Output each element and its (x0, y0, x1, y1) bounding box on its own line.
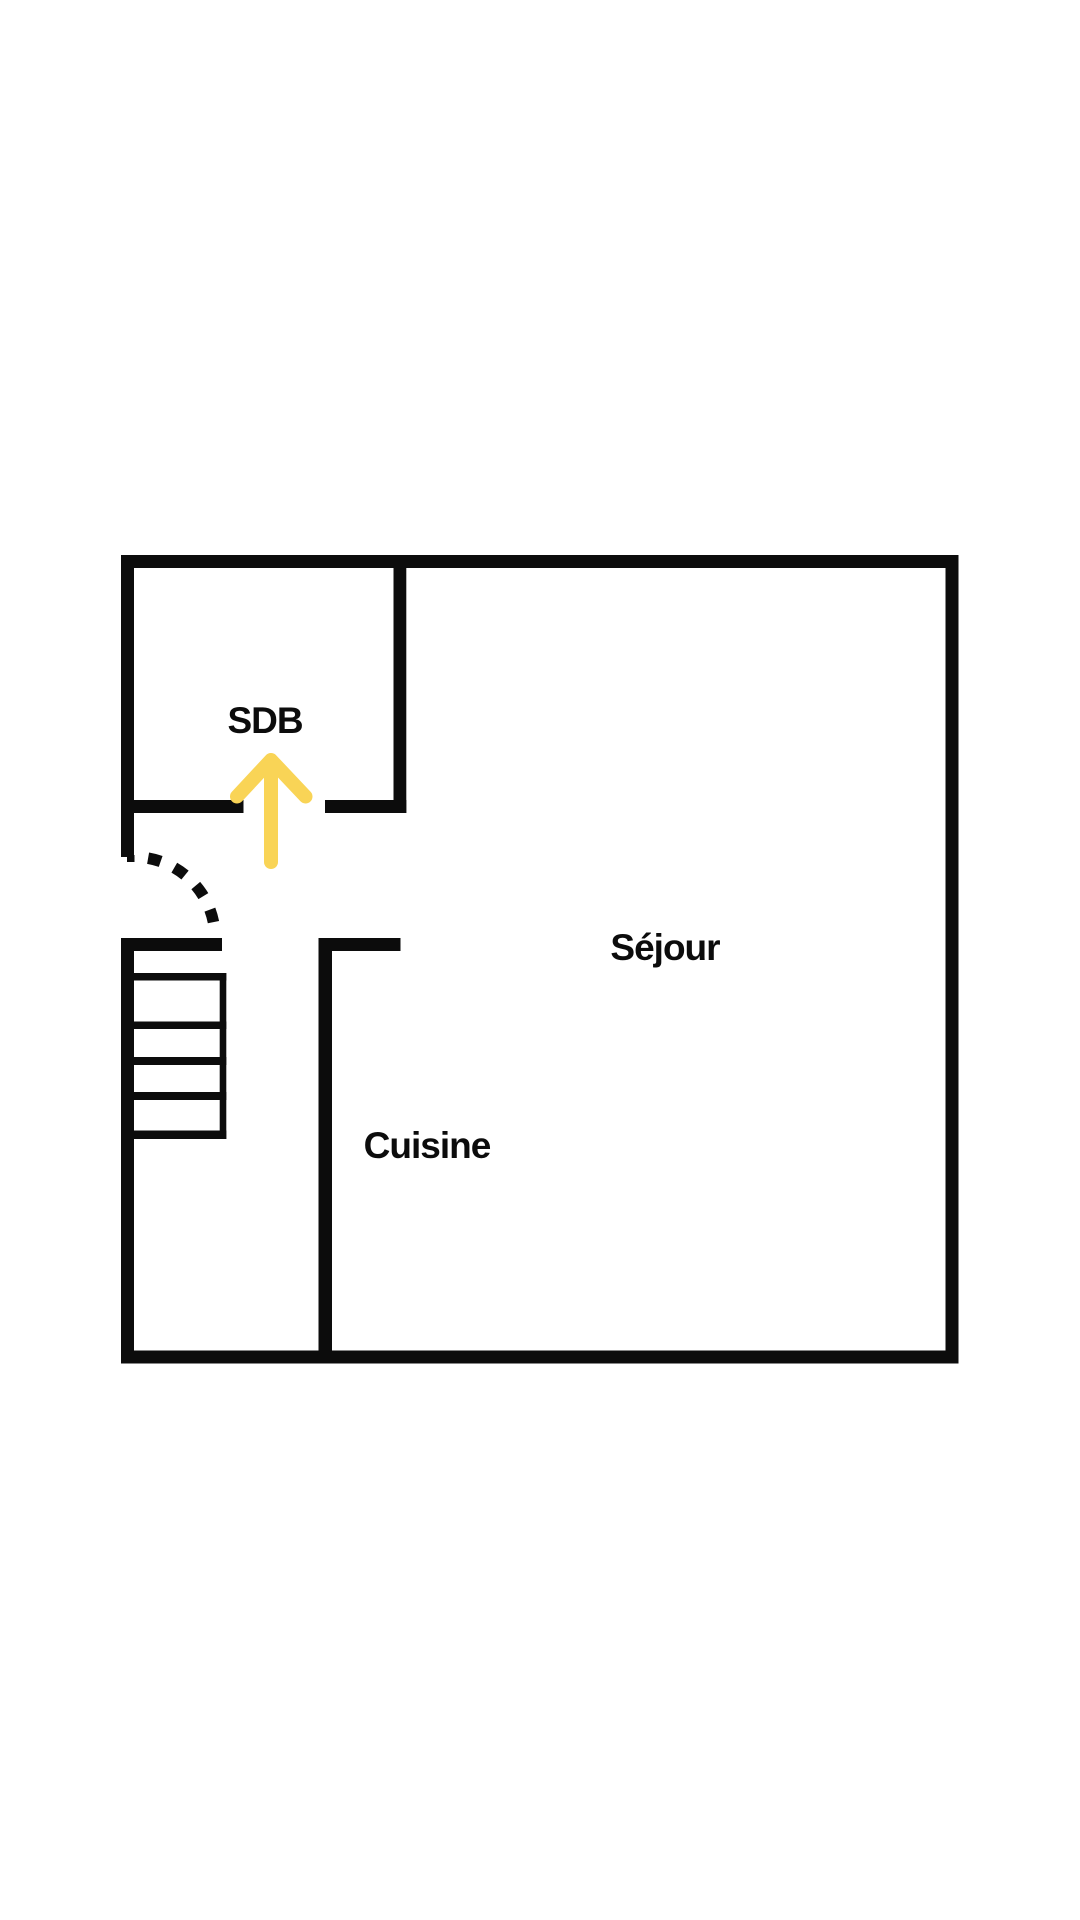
svg-text:Séjour: Séjour (610, 927, 720, 968)
svg-text:SDB: SDB (227, 700, 302, 741)
svg-text:Cuisine: Cuisine (364, 1125, 491, 1166)
